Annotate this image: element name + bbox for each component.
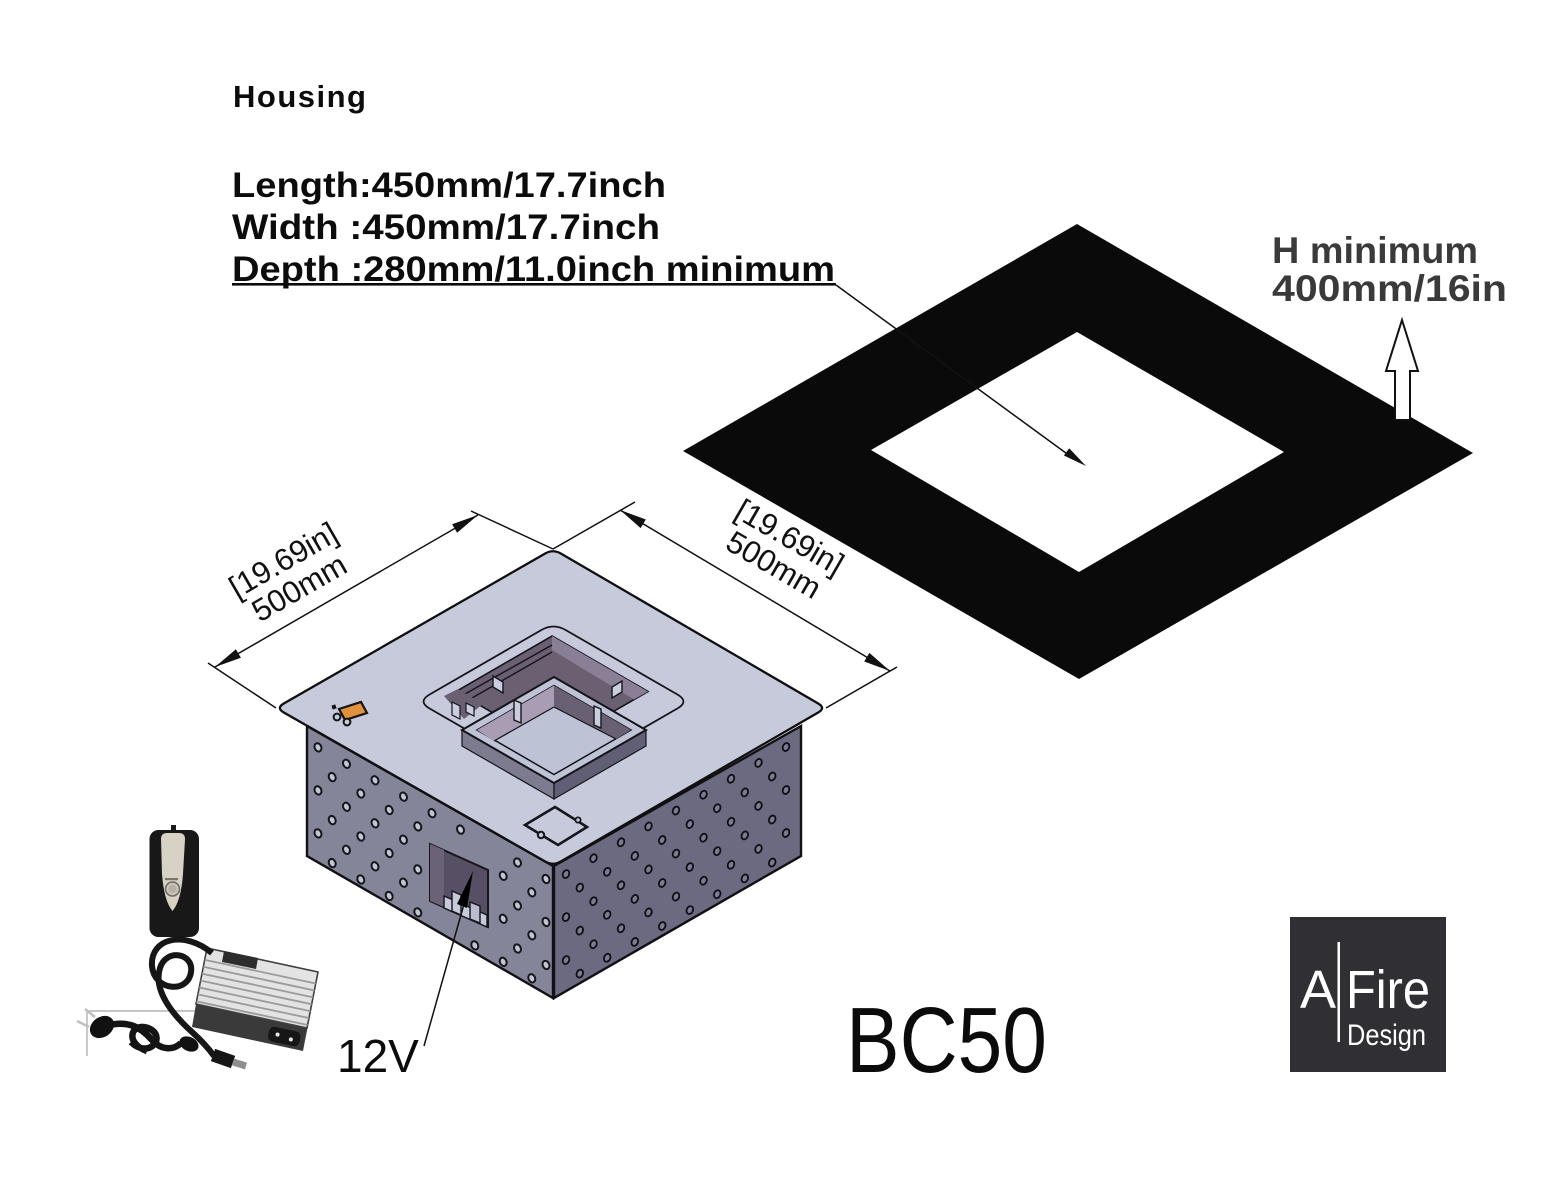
svg-text:Width :450mm/17.7inch: Width :450mm/17.7inch xyxy=(232,208,660,247)
svg-text:12V: 12V xyxy=(337,1030,419,1082)
svg-text:Design: Design xyxy=(1347,1019,1426,1052)
svg-text:H minimum: H minimum xyxy=(1272,230,1478,271)
svg-text:Fire: Fire xyxy=(1346,960,1430,1020)
svg-text:A: A xyxy=(1300,960,1336,1020)
svg-text:BC50: BC50 xyxy=(846,988,1047,1092)
svg-text:Length:450mm/17.7inch: Length:450mm/17.7inch xyxy=(232,166,666,205)
svg-text:Housing: Housing xyxy=(233,79,368,114)
svg-text:400mm/16in: 400mm/16in xyxy=(1272,268,1507,309)
